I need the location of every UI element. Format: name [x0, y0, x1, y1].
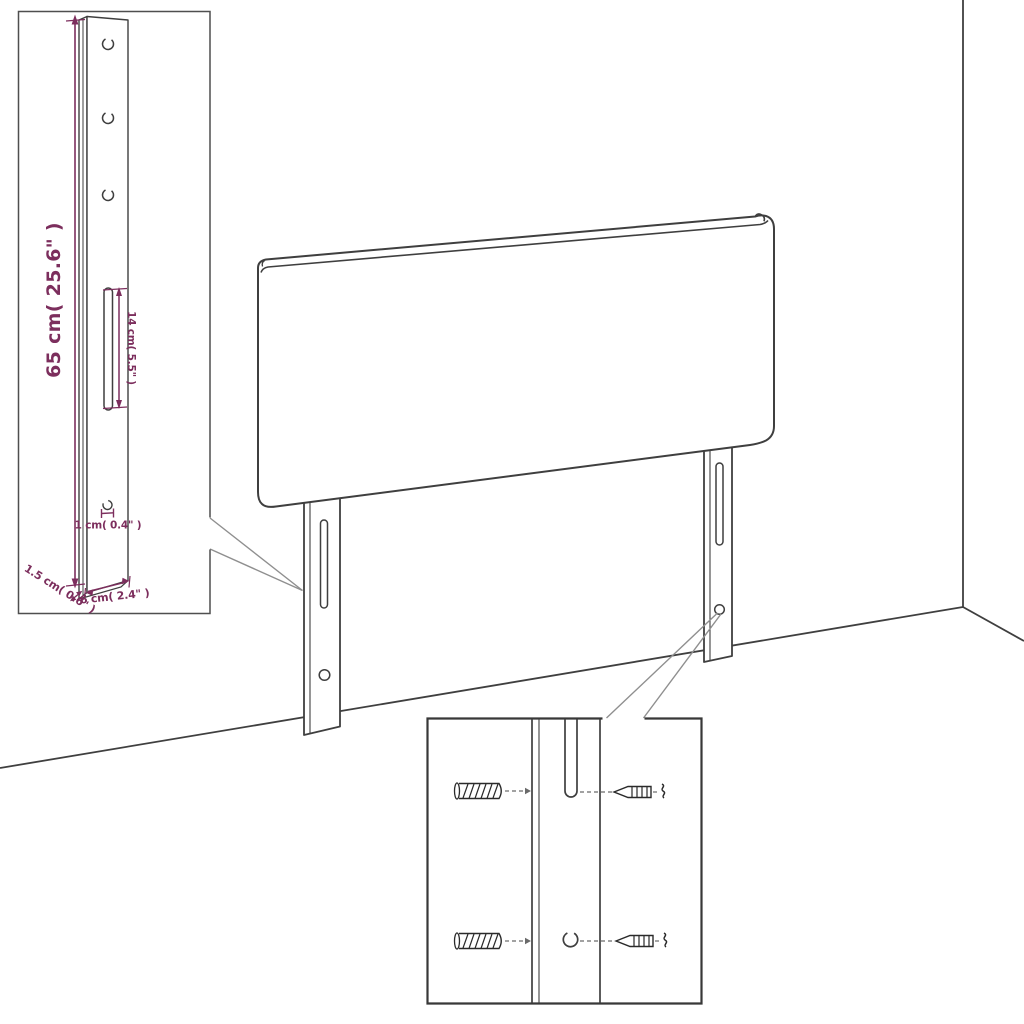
right-leg-screw-hole — [715, 605, 725, 615]
left-mounting-leg — [304, 484, 340, 735]
dimension-label-leg-height: 65 cm( 25.6" ) — [43, 222, 65, 378]
background — [0, 0, 1024, 1024]
left-leg-slot — [321, 520, 328, 608]
bracket-slot — [104, 288, 113, 410]
right-mounting-leg — [704, 441, 732, 662]
dimension-label-hole-diameter: 1 cm( 0.4" ) — [75, 520, 142, 532]
dim-line — [102, 513, 114, 514]
leg-bracket — [79, 17, 128, 600]
assembly-diagram: 65 cm( 25.6" ) 14 cm( 5.5" ) 1 cm( 0.4" … — [0, 0, 1024, 1024]
left-leg-screw-hole — [319, 670, 330, 681]
right-leg-slot — [716, 463, 723, 545]
dimension-label-slot-length: 14 cm( 5.5" ) — [125, 311, 137, 385]
